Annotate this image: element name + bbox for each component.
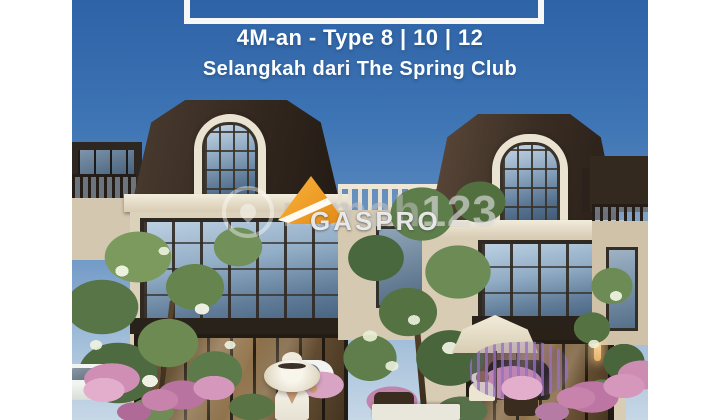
right-house-bay-window bbox=[478, 240, 606, 324]
pink-flowers-front-left bbox=[72, 372, 254, 420]
rumah123-logo-icon bbox=[222, 186, 274, 238]
headline-price-type: 4M-an - Type 8 | 10 | 12 bbox=[72, 25, 648, 51]
location-pin-icon bbox=[237, 201, 260, 224]
left-house-floor-band bbox=[130, 318, 344, 334]
right-wing-wall bbox=[592, 221, 648, 345]
watermark-gaspro: GASPRO bbox=[310, 206, 441, 237]
left-wing-window bbox=[78, 150, 134, 176]
property-render-photo: 4M-an - Type 8 | 10 | 12 Selangkah dari … bbox=[72, 0, 648, 420]
headline-tagline: Selangkah dari The Spring Club bbox=[72, 58, 648, 81]
top-frame-outline bbox=[184, 0, 544, 24]
left-wing-wall bbox=[72, 198, 130, 260]
right-wing-roof-step bbox=[582, 168, 590, 212]
pink-flowers-front-right bbox=[492, 368, 648, 420]
sun-hat-band bbox=[278, 363, 306, 369]
ad-canvas: 4M-an - Type 8 | 10 | 12 Selangkah dari … bbox=[0, 0, 720, 420]
white-planter-box bbox=[372, 404, 460, 420]
right-wing-window bbox=[606, 247, 638, 331]
